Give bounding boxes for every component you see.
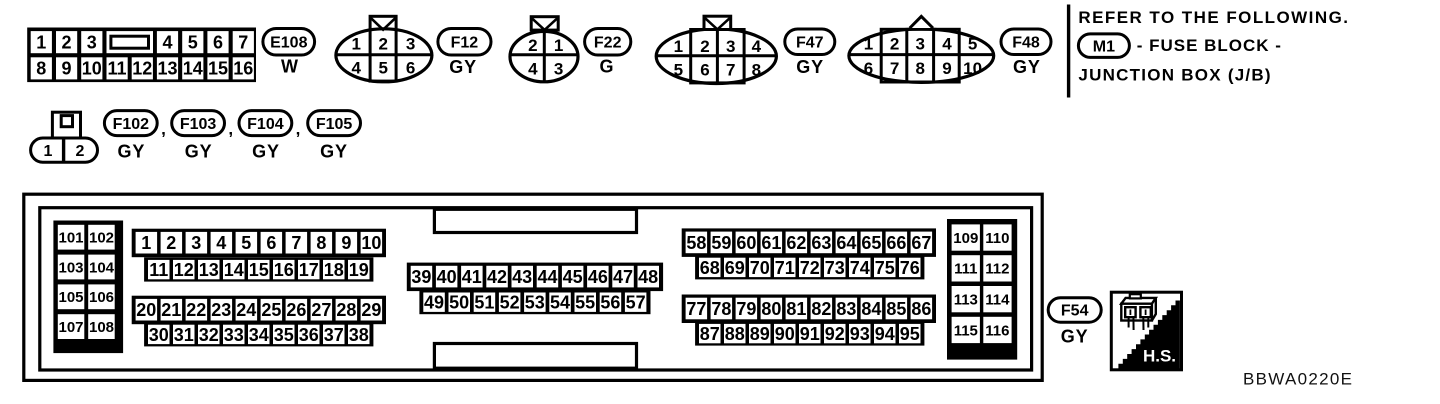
svg-text:19: 19 — [349, 260, 369, 280]
svg-text:86: 86 — [911, 299, 931, 319]
svg-text:111: 111 — [954, 261, 977, 278]
svg-text:8: 8 — [36, 59, 46, 79]
svg-text:BBWA0220E: BBWA0220E — [1243, 370, 1353, 389]
svg-text:8: 8 — [915, 59, 924, 78]
svg-text:5: 5 — [968, 35, 977, 54]
svg-text:44: 44 — [537, 267, 557, 287]
svg-text:109: 109 — [953, 230, 978, 247]
svg-text:F48: F48 — [1012, 34, 1040, 51]
svg-text:115: 115 — [954, 322, 978, 339]
svg-text:1: 1 — [36, 33, 46, 53]
svg-text:10: 10 — [963, 59, 982, 78]
svg-text:5: 5 — [674, 61, 683, 80]
svg-text:46: 46 — [588, 267, 608, 287]
svg-text:1: 1 — [141, 233, 151, 253]
svg-text:59: 59 — [711, 233, 731, 253]
svg-text:21: 21 — [161, 300, 181, 320]
svg-text:116: 116 — [985, 322, 1009, 339]
svg-text:83: 83 — [836, 299, 856, 319]
svg-text:,: , — [228, 120, 233, 139]
svg-text:78: 78 — [711, 299, 731, 319]
svg-text:27: 27 — [311, 300, 331, 320]
svg-text:6: 6 — [266, 233, 276, 253]
svg-text:15: 15 — [249, 260, 269, 280]
svg-text:29: 29 — [361, 300, 381, 320]
svg-text:4: 4 — [216, 233, 226, 253]
svg-text:107: 107 — [58, 319, 83, 336]
svg-text:47: 47 — [613, 267, 633, 287]
svg-text:- FUSE BLOCK -: - FUSE BLOCK - — [1137, 36, 1282, 55]
svg-text:11: 11 — [149, 260, 168, 280]
svg-text:92: 92 — [825, 324, 845, 344]
svg-text:57: 57 — [626, 293, 646, 313]
svg-text:13: 13 — [199, 260, 219, 280]
svg-text:104: 104 — [89, 259, 115, 276]
svg-text:H.S.: H.S. — [1143, 347, 1176, 366]
svg-text:14: 14 — [224, 260, 244, 280]
svg-text:110: 110 — [985, 230, 1009, 247]
svg-text:72: 72 — [800, 258, 820, 278]
svg-text:89: 89 — [750, 324, 770, 344]
svg-text:3: 3 — [915, 35, 924, 54]
svg-text:37: 37 — [324, 325, 344, 345]
svg-text:23: 23 — [211, 300, 231, 320]
svg-text:6: 6 — [406, 59, 415, 78]
svg-text:77: 77 — [686, 299, 706, 319]
svg-text:26: 26 — [286, 300, 306, 320]
svg-text:6: 6 — [864, 59, 873, 78]
svg-text:70: 70 — [750, 258, 770, 278]
svg-text:73: 73 — [825, 258, 845, 278]
svg-text:7: 7 — [238, 33, 248, 53]
svg-text:4: 4 — [351, 59, 361, 78]
svg-text:39: 39 — [411, 267, 431, 287]
svg-text:63: 63 — [811, 233, 831, 253]
svg-text:9: 9 — [942, 59, 951, 78]
svg-text:7: 7 — [890, 59, 899, 78]
svg-text:10: 10 — [82, 59, 102, 79]
svg-text:1: 1 — [44, 143, 53, 160]
svg-text:112: 112 — [985, 261, 1009, 278]
svg-text:4: 4 — [162, 33, 172, 53]
svg-text:13: 13 — [157, 59, 177, 79]
svg-text:41: 41 — [462, 267, 482, 287]
svg-text:2: 2 — [528, 36, 537, 55]
svg-text:80: 80 — [761, 299, 781, 319]
svg-text:61: 61 — [761, 233, 781, 253]
svg-text:24: 24 — [236, 300, 256, 320]
svg-text:33: 33 — [224, 325, 244, 345]
svg-text:4: 4 — [528, 60, 538, 79]
svg-text:2: 2 — [700, 37, 709, 56]
svg-text:34: 34 — [249, 325, 269, 345]
svg-text:3: 3 — [87, 33, 97, 53]
svg-text:101: 101 — [58, 230, 83, 247]
svg-text:67: 67 — [911, 233, 931, 253]
svg-text:,: , — [296, 120, 301, 139]
svg-text:3: 3 — [554, 60, 563, 79]
svg-text:GY: GY — [185, 142, 213, 162]
svg-text:11: 11 — [107, 59, 126, 79]
svg-text:102: 102 — [89, 230, 114, 247]
svg-text:1: 1 — [674, 37, 683, 56]
svg-text:12: 12 — [132, 59, 152, 79]
svg-text:30: 30 — [149, 325, 169, 345]
svg-text:1: 1 — [554, 36, 563, 55]
svg-text:F54: F54 — [1061, 303, 1089, 320]
svg-text:7: 7 — [291, 233, 301, 253]
svg-text:14: 14 — [183, 59, 203, 79]
svg-text:17: 17 — [299, 260, 319, 280]
svg-text:GY: GY — [252, 142, 280, 162]
svg-text:85: 85 — [886, 299, 906, 319]
svg-text:91: 91 — [800, 324, 820, 344]
svg-text:2: 2 — [166, 233, 176, 253]
svg-text:48: 48 — [638, 267, 658, 287]
svg-text:51: 51 — [474, 293, 494, 313]
svg-text:6: 6 — [213, 33, 223, 53]
svg-text:60: 60 — [736, 233, 756, 253]
svg-text:2: 2 — [378, 35, 387, 54]
svg-text:94: 94 — [875, 324, 895, 344]
svg-text:103: 103 — [58, 259, 83, 276]
svg-text:GY: GY — [320, 142, 348, 162]
svg-text:42: 42 — [487, 267, 507, 287]
svg-text:4: 4 — [942, 35, 952, 54]
svg-text:F22: F22 — [594, 34, 622, 51]
svg-text:F102: F102 — [113, 116, 150, 133]
svg-text:28: 28 — [336, 300, 356, 320]
svg-text:GY: GY — [449, 57, 477, 77]
svg-text:58: 58 — [686, 233, 706, 253]
svg-text:F105: F105 — [316, 116, 353, 133]
svg-text:22: 22 — [186, 300, 206, 320]
svg-text:82: 82 — [811, 299, 831, 319]
svg-text:75: 75 — [875, 258, 895, 278]
svg-text:E108: E108 — [270, 34, 307, 51]
svg-text:4: 4 — [752, 37, 762, 56]
svg-text:64: 64 — [836, 233, 856, 253]
svg-text:1: 1 — [864, 35, 873, 54]
svg-text:16: 16 — [274, 260, 294, 280]
svg-text:18: 18 — [324, 260, 344, 280]
svg-text:8: 8 — [316, 233, 326, 253]
svg-text:84: 84 — [861, 299, 881, 319]
svg-text:65: 65 — [861, 233, 881, 253]
svg-text:5: 5 — [378, 59, 387, 78]
svg-text:69: 69 — [725, 258, 745, 278]
svg-text:JUNCTION BOX (J/B): JUNCTION BOX (J/B) — [1078, 65, 1271, 84]
svg-text:50: 50 — [449, 293, 469, 313]
svg-text:F12: F12 — [451, 34, 479, 51]
svg-text:W: W — [281, 57, 298, 77]
svg-text:3: 3 — [191, 233, 201, 253]
svg-text:40: 40 — [437, 267, 457, 287]
svg-text:90: 90 — [775, 324, 795, 344]
svg-text:56: 56 — [600, 293, 620, 313]
svg-text:106: 106 — [89, 289, 114, 306]
svg-text:,: , — [161, 120, 166, 139]
svg-text:F103: F103 — [180, 116, 217, 133]
svg-text:F104: F104 — [247, 116, 284, 133]
svg-text:F47: F47 — [796, 34, 824, 51]
svg-text:G: G — [599, 57, 613, 77]
svg-text:2: 2 — [76, 143, 85, 160]
svg-text:76: 76 — [900, 258, 920, 278]
svg-text:79: 79 — [736, 299, 756, 319]
svg-text:8: 8 — [752, 61, 761, 80]
svg-text:31: 31 — [174, 325, 194, 345]
svg-text:87: 87 — [700, 324, 720, 344]
svg-text:2: 2 — [890, 35, 899, 54]
svg-text:52: 52 — [500, 293, 520, 313]
svg-text:108: 108 — [89, 319, 114, 336]
svg-text:53: 53 — [525, 293, 545, 313]
svg-text:105: 105 — [58, 289, 83, 306]
svg-text:2: 2 — [61, 33, 71, 53]
svg-text:GY: GY — [796, 57, 824, 77]
svg-text:5: 5 — [188, 33, 198, 53]
svg-text:16: 16 — [233, 59, 253, 79]
svg-text:REFER TO THE FOLLOWING.: REFER TO THE FOLLOWING. — [1078, 8, 1349, 27]
svg-text:45: 45 — [563, 267, 583, 287]
svg-text:43: 43 — [512, 267, 532, 287]
svg-text:20: 20 — [136, 300, 156, 320]
svg-text:25: 25 — [261, 300, 281, 320]
svg-text:114: 114 — [985, 292, 1010, 309]
svg-text:81: 81 — [786, 299, 806, 319]
svg-text:49: 49 — [424, 293, 444, 313]
svg-text:GY: GY — [1061, 327, 1089, 347]
svg-text:7: 7 — [726, 61, 735, 80]
svg-text:66: 66 — [886, 233, 906, 253]
svg-text:3: 3 — [726, 37, 735, 56]
svg-text:9: 9 — [61, 59, 71, 79]
svg-text:GY: GY — [117, 142, 145, 162]
svg-text:71: 71 — [775, 258, 795, 278]
svg-text:95: 95 — [900, 324, 920, 344]
svg-text:M1: M1 — [1093, 38, 1115, 55]
svg-text:55: 55 — [575, 293, 595, 313]
svg-text:68: 68 — [700, 258, 720, 278]
svg-text:5: 5 — [241, 233, 251, 253]
svg-text:15: 15 — [208, 59, 228, 79]
svg-text:36: 36 — [299, 325, 319, 345]
svg-text:1: 1 — [351, 35, 360, 54]
svg-text:62: 62 — [786, 233, 806, 253]
svg-text:35: 35 — [274, 325, 294, 345]
svg-text:6: 6 — [700, 61, 709, 80]
svg-text:GY: GY — [1013, 57, 1041, 77]
svg-text:88: 88 — [725, 324, 745, 344]
svg-text:38: 38 — [349, 325, 369, 345]
svg-text:10: 10 — [361, 233, 381, 253]
svg-text:12: 12 — [174, 260, 194, 280]
svg-text:32: 32 — [199, 325, 219, 345]
svg-text:3: 3 — [406, 35, 415, 54]
svg-text:93: 93 — [850, 324, 870, 344]
svg-text:54: 54 — [550, 293, 570, 313]
svg-text:9: 9 — [341, 233, 351, 253]
svg-text:74: 74 — [850, 258, 870, 278]
svg-text:113: 113 — [954, 292, 978, 309]
